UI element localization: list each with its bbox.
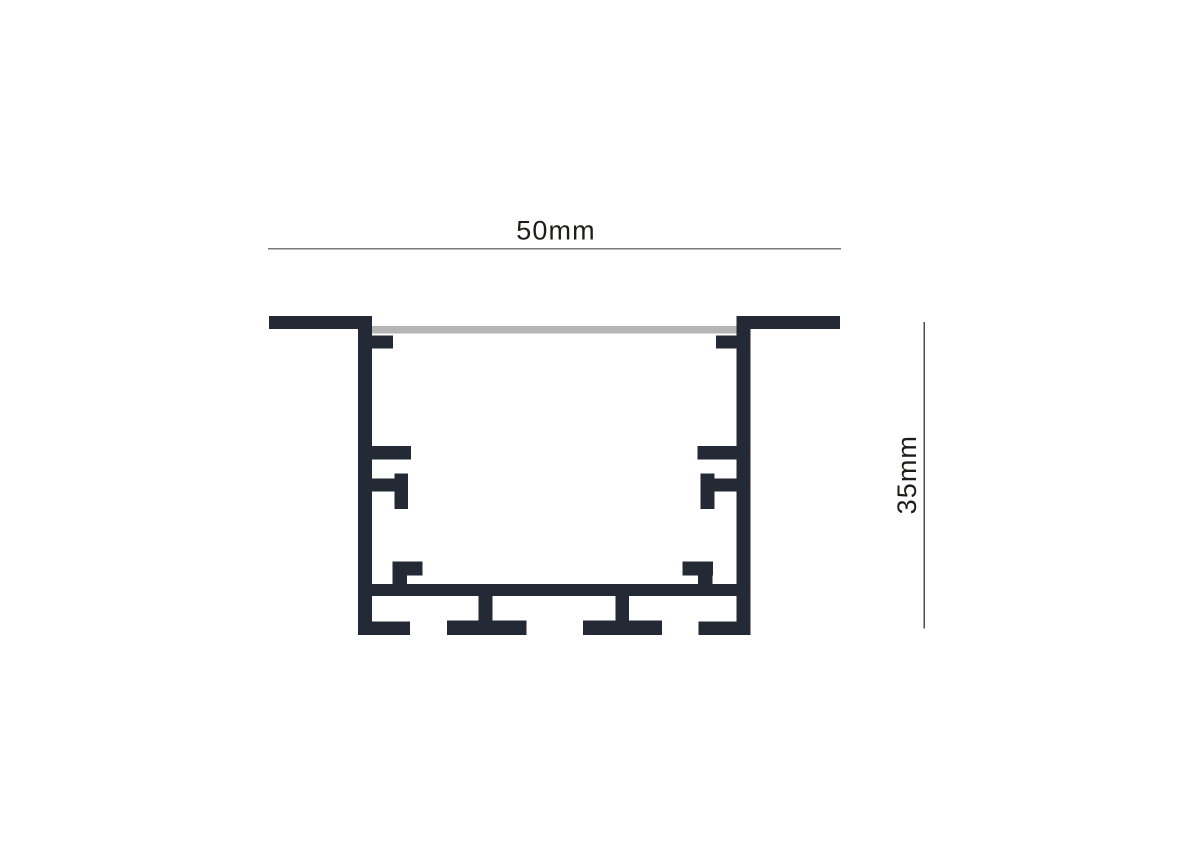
svg-text:50mm: 50mm xyxy=(516,216,595,246)
svg-text:35mm: 35mm xyxy=(892,435,922,514)
